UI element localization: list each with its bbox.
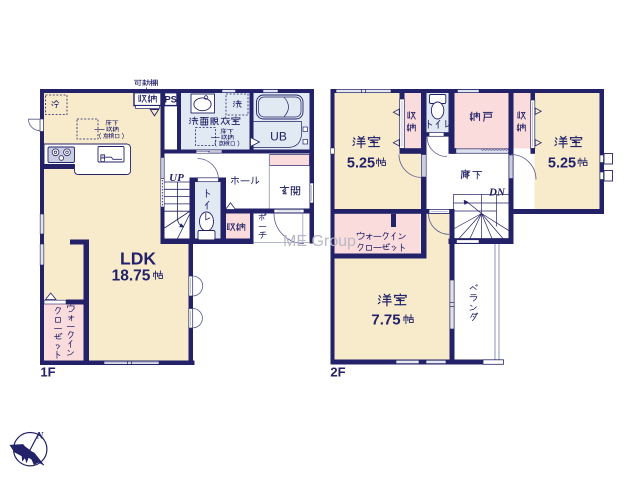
svg-text:1F: 1F (40, 365, 55, 380)
svg-text:N: N (36, 431, 44, 441)
svg-text:5.25: 5.25 (347, 156, 375, 172)
svg-text:UB: UB (270, 130, 287, 144)
svg-text:DN: DN (488, 187, 506, 199)
svg-text:2F: 2F (330, 365, 345, 380)
svg-text:5.25: 5.25 (548, 156, 576, 172)
svg-text:7.75: 7.75 (371, 312, 400, 329)
svg-text:18.75: 18.75 (112, 268, 151, 285)
svg-text:PS: PS (164, 95, 177, 106)
svg-text:ME Group: ME Group (283, 233, 356, 250)
svg-text:LDK: LDK (120, 249, 156, 269)
